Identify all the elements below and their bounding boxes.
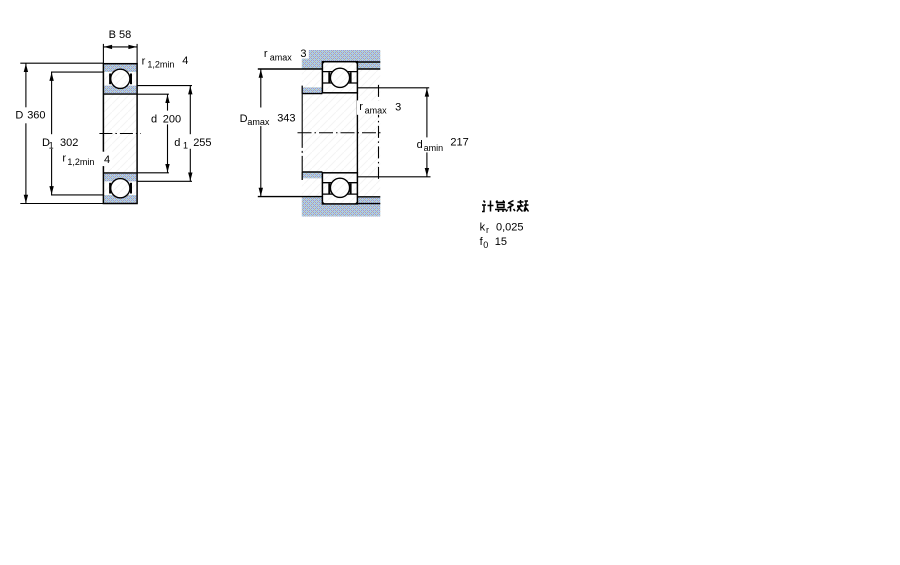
svg-text:r: r <box>62 153 66 165</box>
svg-text:302: 302 <box>60 137 78 149</box>
svg-text:D: D <box>15 110 23 122</box>
svg-text:4: 4 <box>182 55 188 67</box>
svg-text:amax: amax <box>270 53 293 63</box>
svg-text:360: 360 <box>27 110 45 122</box>
svg-text:0,025: 0,025 <box>496 221 524 233</box>
svg-text:0: 0 <box>483 240 488 250</box>
svg-text:4: 4 <box>104 154 110 166</box>
svg-text:d: d <box>151 113 157 125</box>
svg-text:15: 15 <box>495 236 507 248</box>
svg-text:k: k <box>480 221 486 233</box>
svg-text:D: D <box>240 113 248 125</box>
svg-text:r: r <box>142 55 146 67</box>
svg-text:200: 200 <box>163 113 181 125</box>
svg-text:r: r <box>486 225 489 235</box>
svg-text:3: 3 <box>395 101 401 113</box>
svg-text:amin: amin <box>424 143 444 153</box>
svg-text:amax: amax <box>247 117 270 127</box>
svg-text:d: d <box>417 139 423 151</box>
svg-text:d: d <box>174 137 180 149</box>
svg-text:1: 1 <box>49 141 54 151</box>
svg-text:217: 217 <box>450 136 468 148</box>
svg-text:1,2min: 1,2min <box>67 157 94 167</box>
svg-text:r: r <box>359 101 363 113</box>
svg-text:r: r <box>264 48 268 60</box>
svg-text:58: 58 <box>119 29 131 41</box>
svg-text:255: 255 <box>193 137 211 149</box>
svg-text:B: B <box>109 29 116 41</box>
svg-text:amax: amax <box>365 105 388 115</box>
svg-text:343: 343 <box>277 113 295 125</box>
svg-text:3: 3 <box>300 48 306 60</box>
svg-text:1: 1 <box>183 141 188 151</box>
svg-text:1,2min: 1,2min <box>147 59 174 69</box>
